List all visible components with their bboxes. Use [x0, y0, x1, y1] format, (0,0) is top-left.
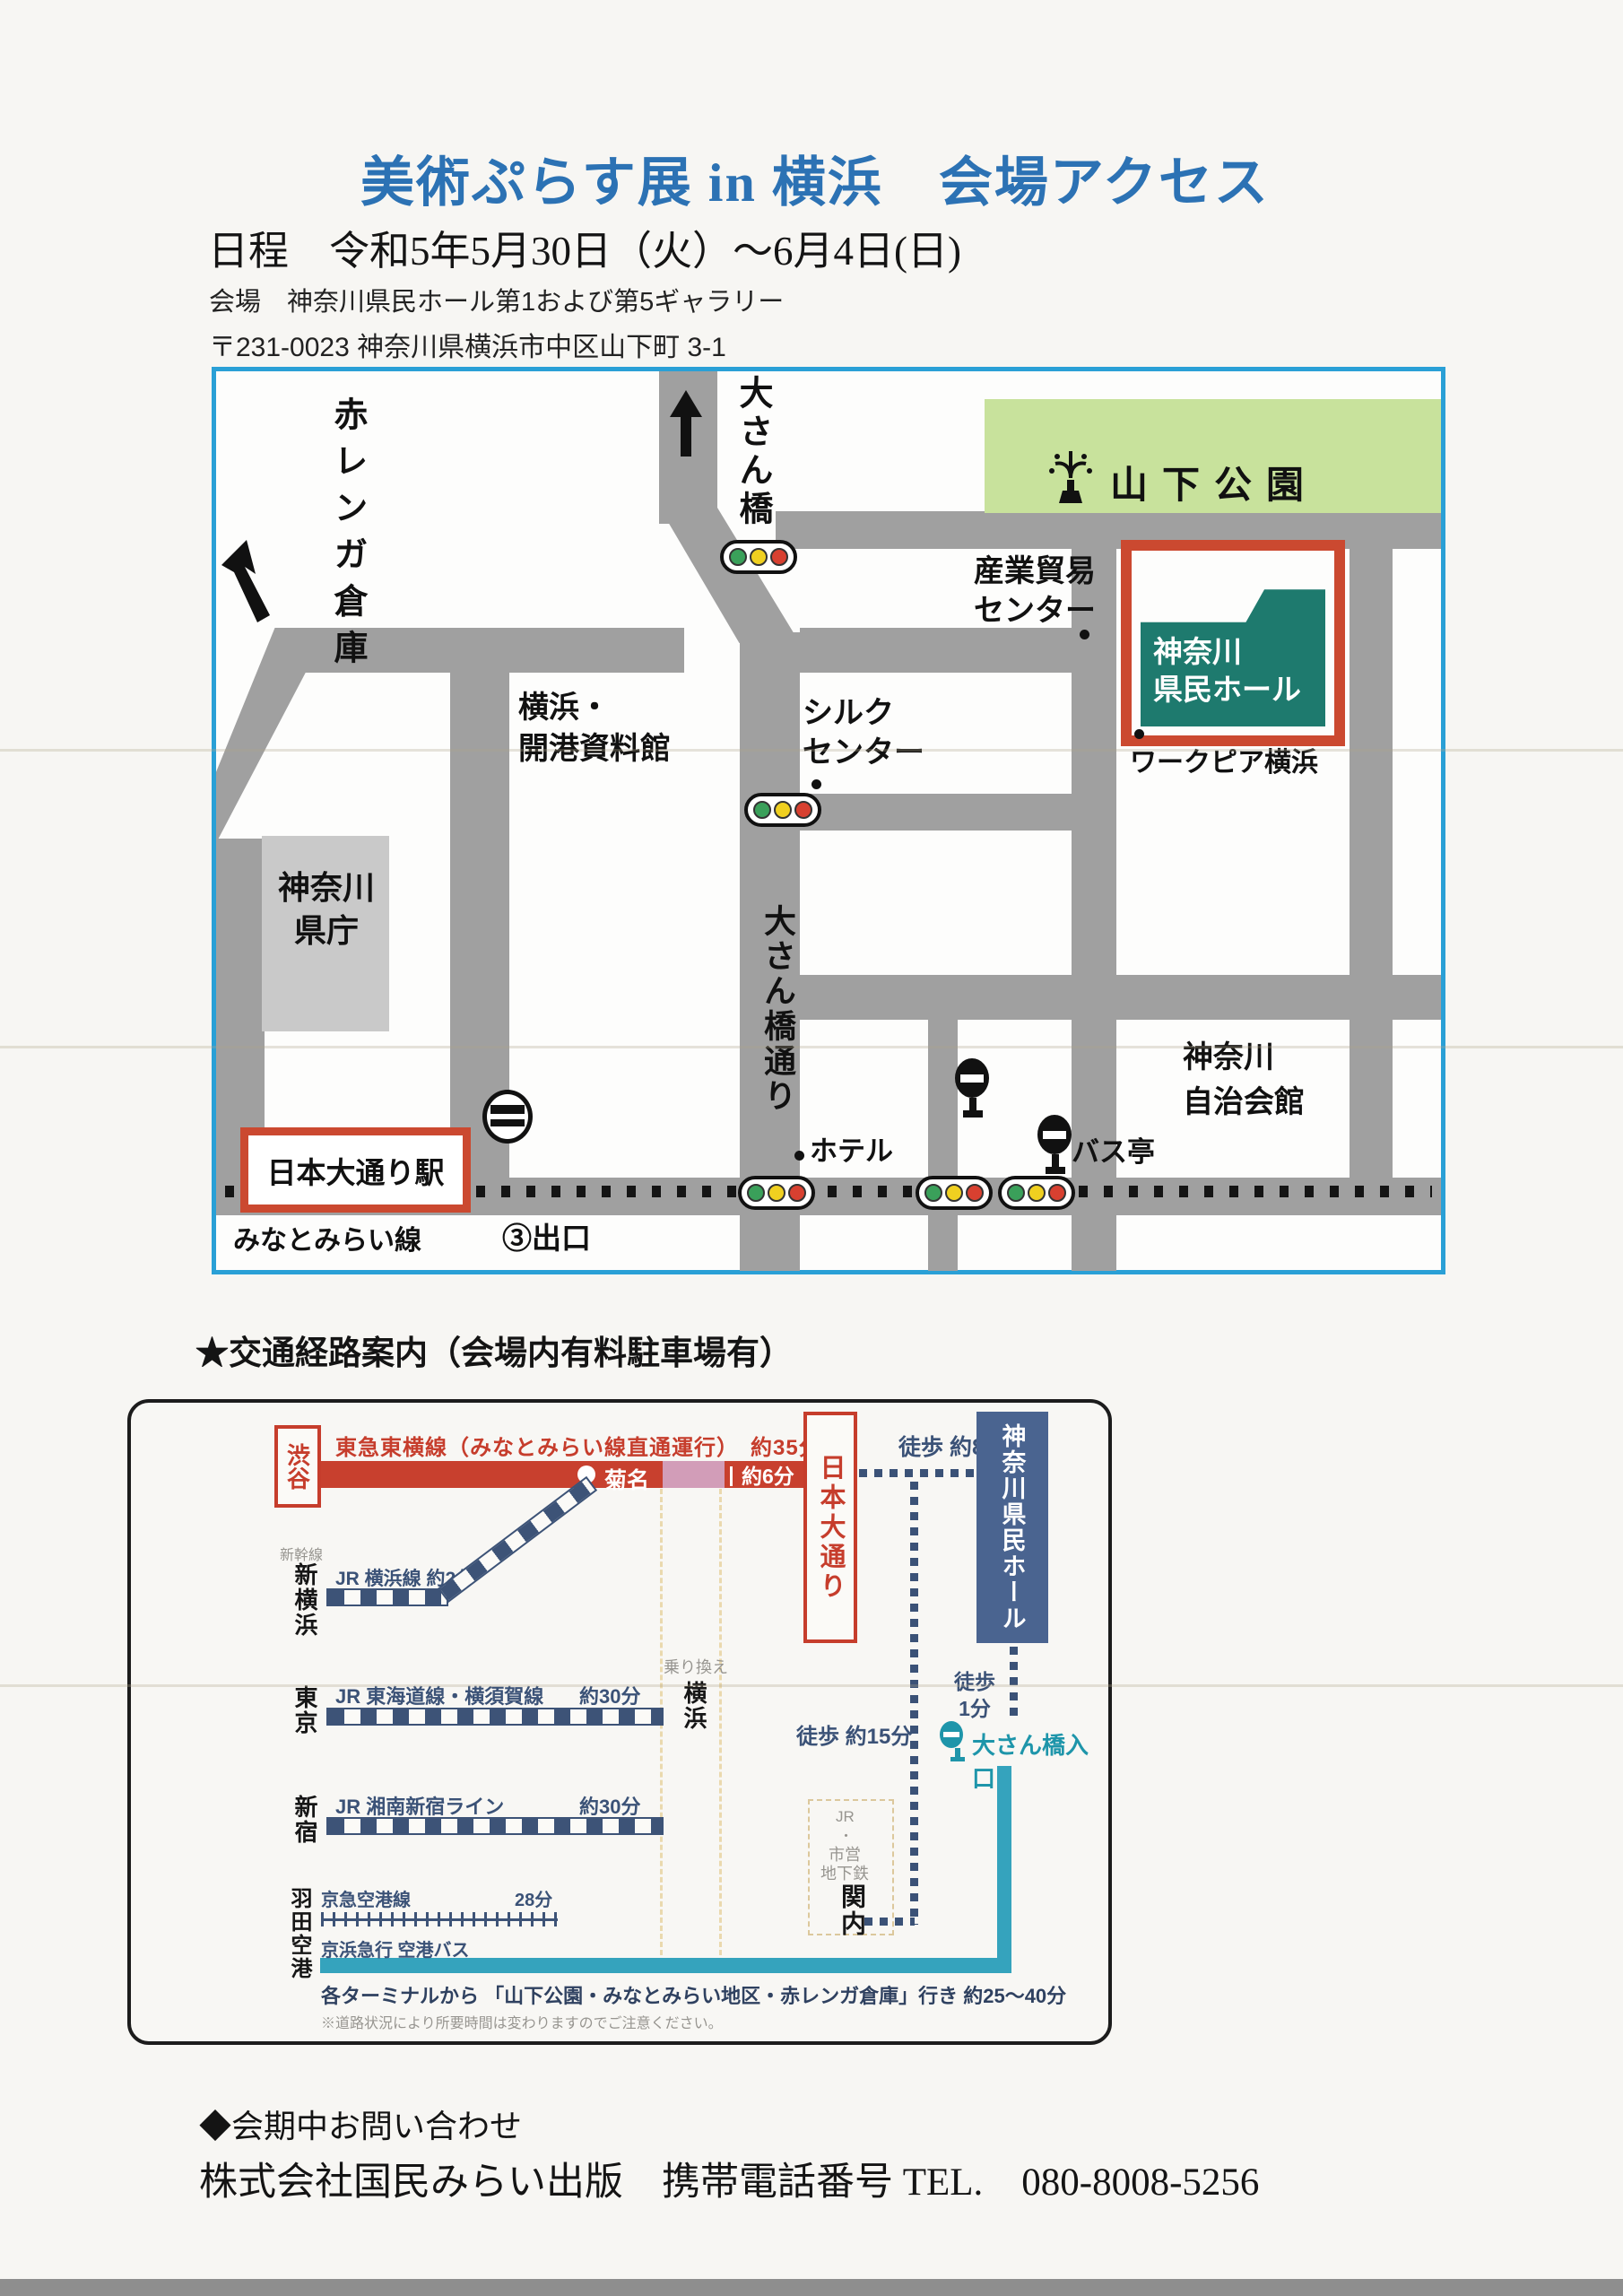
- fold-line: [0, 749, 1623, 752]
- sangyo-boeki-dot: [1080, 630, 1089, 639]
- road-middle-horizontal: [800, 975, 1441, 1020]
- hotel-dot: [794, 1151, 804, 1161]
- walk1-dotted-line: [1010, 1647, 1018, 1718]
- road-vertical-east: [1350, 547, 1393, 1213]
- about6min-label: 約6分: [730, 1465, 806, 1489]
- kannai-chikatetsu-label: 地下鉄: [820, 1861, 869, 1884]
- jr-shonan-label: JR 湘南新宿ライン: [335, 1791, 504, 1820]
- access-map: 神奈川 県民ホール 日本大通り駅 赤レンガ倉庫 大さん橋 山下公園: [212, 367, 1445, 1274]
- traffic-light-icon: [738, 1176, 815, 1210]
- kaiko-museum-label: 横浜・ 開港資料館: [518, 687, 671, 770]
- transit-diagram: 東急東横線（みなとみらい線直通運行） 約35分 菊名 約6分 渋谷 日本大通り …: [127, 1399, 1112, 2045]
- road-main-horizontal-east: [800, 628, 1116, 673]
- akarenga-label: 赤レンガ倉庫: [323, 396, 372, 676]
- jr-shonan-track: [326, 1817, 664, 1835]
- fold-line: [0, 1684, 1623, 1687]
- traffic-light-icon: [720, 540, 797, 574]
- kannai-label: 関内: [834, 1883, 870, 1937]
- arrow-up-icon: [668, 390, 704, 458]
- kencho-label: 神奈川 県庁: [268, 866, 385, 952]
- shinkansen-label: 新幹線: [280, 1543, 323, 1564]
- jr-yokohama-line-track: [326, 1588, 448, 1606]
- jr-tokaido-track: [326, 1708, 664, 1726]
- guide-line: [719, 1489, 722, 1955]
- toyoko-line-label: 東急東横線（みなとみらい線直通運行） 約35分: [335, 1430, 821, 1461]
- shinjuku-label: 新宿: [289, 1795, 322, 1845]
- norikae-label: 乗り換え: [664, 1655, 728, 1678]
- minatomirai-through-segment: [663, 1461, 725, 1488]
- exit3-label: ③出口: [502, 1214, 591, 1257]
- workpia-label: ワークピア横浜: [1130, 740, 1318, 779]
- jichikaikan-label: 神奈川 自治会館: [1183, 1035, 1305, 1125]
- walk8-dotted-line: [859, 1469, 977, 1477]
- road-vertical-center-block: [928, 975, 958, 1271]
- hotel-label: ホテル: [810, 1128, 893, 1169]
- nihon-odori-station-label: 日本大通り駅: [267, 1149, 445, 1192]
- address-line: 〒231-0023 神奈川県横浜市中区山下町 3-1: [209, 325, 726, 364]
- osanbashi-pier-label: 大さん橋: [728, 375, 777, 529]
- fold-line: [0, 1046, 1623, 1048]
- traffic-light-icon: [744, 793, 821, 827]
- tokyo-label: 東京: [289, 1685, 322, 1735]
- nihon-odori-station-box-transit: 日本大通り: [803, 1412, 857, 1643]
- about30b-label: 約30分: [579, 1791, 640, 1820]
- route-section-title: ★交通経路案内（会場内有料駐車場有）: [195, 1326, 793, 1374]
- silk-center-label: シルク センター: [803, 693, 924, 772]
- nihon-odori-station-box: 日本大通り駅: [240, 1127, 471, 1213]
- sangyo-boeki-label: 産業貿易 センター: [974, 552, 1096, 631]
- bus-note: 各ターミナルから 「山下公園・みなとみらい地区・赤レンガ倉庫」行き 約25～40…: [321, 1980, 1066, 2009]
- kenmin-hall-box-transit: 神奈川県民ホール: [976, 1412, 1048, 1643]
- workpia-dot: [1134, 729, 1144, 739]
- kannai-dotted-line: [864, 1918, 915, 1926]
- kenmin-hall-box: 神奈川 県民ホール: [1121, 540, 1345, 746]
- walk15-dotted-line: [910, 1482, 918, 1925]
- minatomirai-line-label: みなとみらい線: [233, 1218, 421, 1257]
- min28-label: 28分: [515, 1885, 552, 1911]
- osanbashi-dori-label: 大さん橋通り: [754, 904, 801, 1114]
- walk15-label: 徒歩 約15分: [796, 1718, 912, 1750]
- yokohama-label: 横浜: [678, 1681, 711, 1731]
- walk1-label: 徒歩 1分: [954, 1668, 995, 1722]
- page-title: 美術ぷらす展 in 横浜 会場アクセス: [360, 139, 1436, 217]
- shibuya-station-box: 渋谷: [274, 1425, 321, 1508]
- traffic-light-icon: [916, 1176, 993, 1210]
- bus-stop-icon: [955, 1058, 991, 1118]
- kenmin-hall-label: 神奈川 県民ホール: [1153, 633, 1301, 709]
- osanbashi-entrance-label: 大さん橋入口: [972, 1727, 1108, 1794]
- kannai-jr-label: JR: [836, 1808, 855, 1826]
- jr-yokohama-diagonal-track: [438, 1476, 597, 1603]
- bus-stop-icon: [940, 1721, 976, 1761]
- road-silk-branch: [800, 794, 1072, 831]
- traffic-light-icon: [998, 1176, 1075, 1210]
- footer-contact: 株式会社国民みらい出版 携帯電話番号 TEL. 080-8008-5256: [199, 2151, 1259, 2206]
- metro-station-icon: [482, 1090, 533, 1144]
- keikyu-line-label: 京急空港線: [321, 1885, 411, 1911]
- keihin-bus-label: 京浜急行 空港バス: [321, 1935, 470, 1961]
- keikyu-line-track: [321, 1912, 558, 1926]
- arrow-northwest-icon: [220, 540, 297, 622]
- haneda-label: 羽田空港: [283, 1887, 315, 1980]
- footer-inquiry: ◆会期中お問い合わせ: [199, 2100, 522, 2147]
- fountain-icon: [1045, 444, 1097, 505]
- venue-line: 会場 神奈川県民ホール第1および第5ギャラリー: [209, 281, 784, 318]
- silk-center-dot: [811, 779, 821, 789]
- airport-bus-line-vertical: [997, 1766, 1011, 1973]
- scanner-edge: [0, 2279, 1623, 2296]
- caution-note: ※道路状況により所要時間は変わりますのでご注意ください。: [321, 2011, 723, 2032]
- yamashita-park-label: 山下公園: [1110, 455, 1318, 509]
- schedule-line: 日程 令和5年5月30日（火）～6月4日(日): [208, 218, 961, 276]
- bus-stop-text-label: バス亭: [1072, 1129, 1155, 1170]
- bus-stop-icon: [1037, 1115, 1073, 1174]
- shin-yokohama-label: 新横浜: [289, 1562, 322, 1638]
- kikuna-station-label: 菊名: [604, 1463, 649, 1495]
